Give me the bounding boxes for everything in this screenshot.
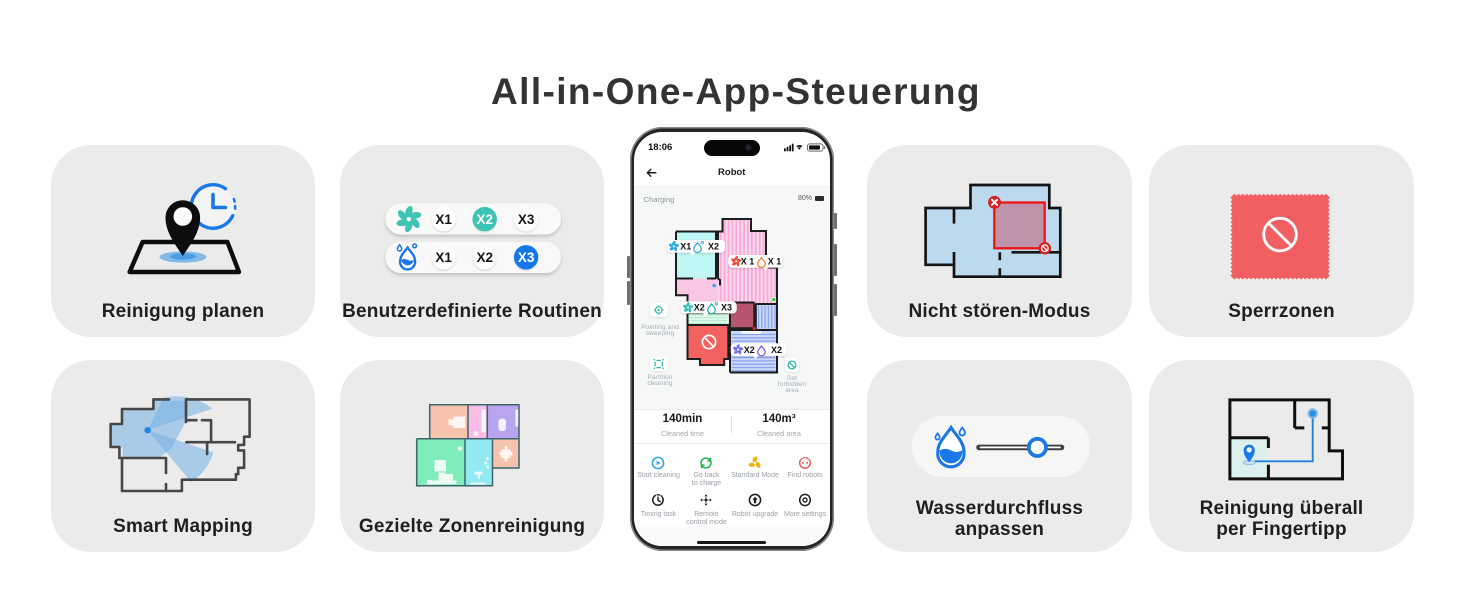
- svg-text:X2: X2: [771, 345, 782, 355]
- svg-text:X3: X3: [721, 303, 732, 313]
- svg-text:X3: X3: [518, 250, 535, 265]
- svg-text:X1: X1: [435, 212, 452, 227]
- svg-text:X2: X2: [476, 250, 493, 265]
- svg-text:X2: X2: [744, 345, 755, 355]
- svg-text:X1: X1: [435, 250, 452, 265]
- svg-text:X 1: X 1: [741, 257, 755, 267]
- svg-text:X3: X3: [518, 212, 535, 227]
- svg-text:X2: X2: [694, 303, 705, 313]
- svg-text:X1: X1: [680, 242, 691, 252]
- svg-text:X2: X2: [476, 212, 493, 227]
- svg-text:X2: X2: [708, 242, 719, 252]
- svg-text:X 1: X 1: [768, 257, 782, 267]
